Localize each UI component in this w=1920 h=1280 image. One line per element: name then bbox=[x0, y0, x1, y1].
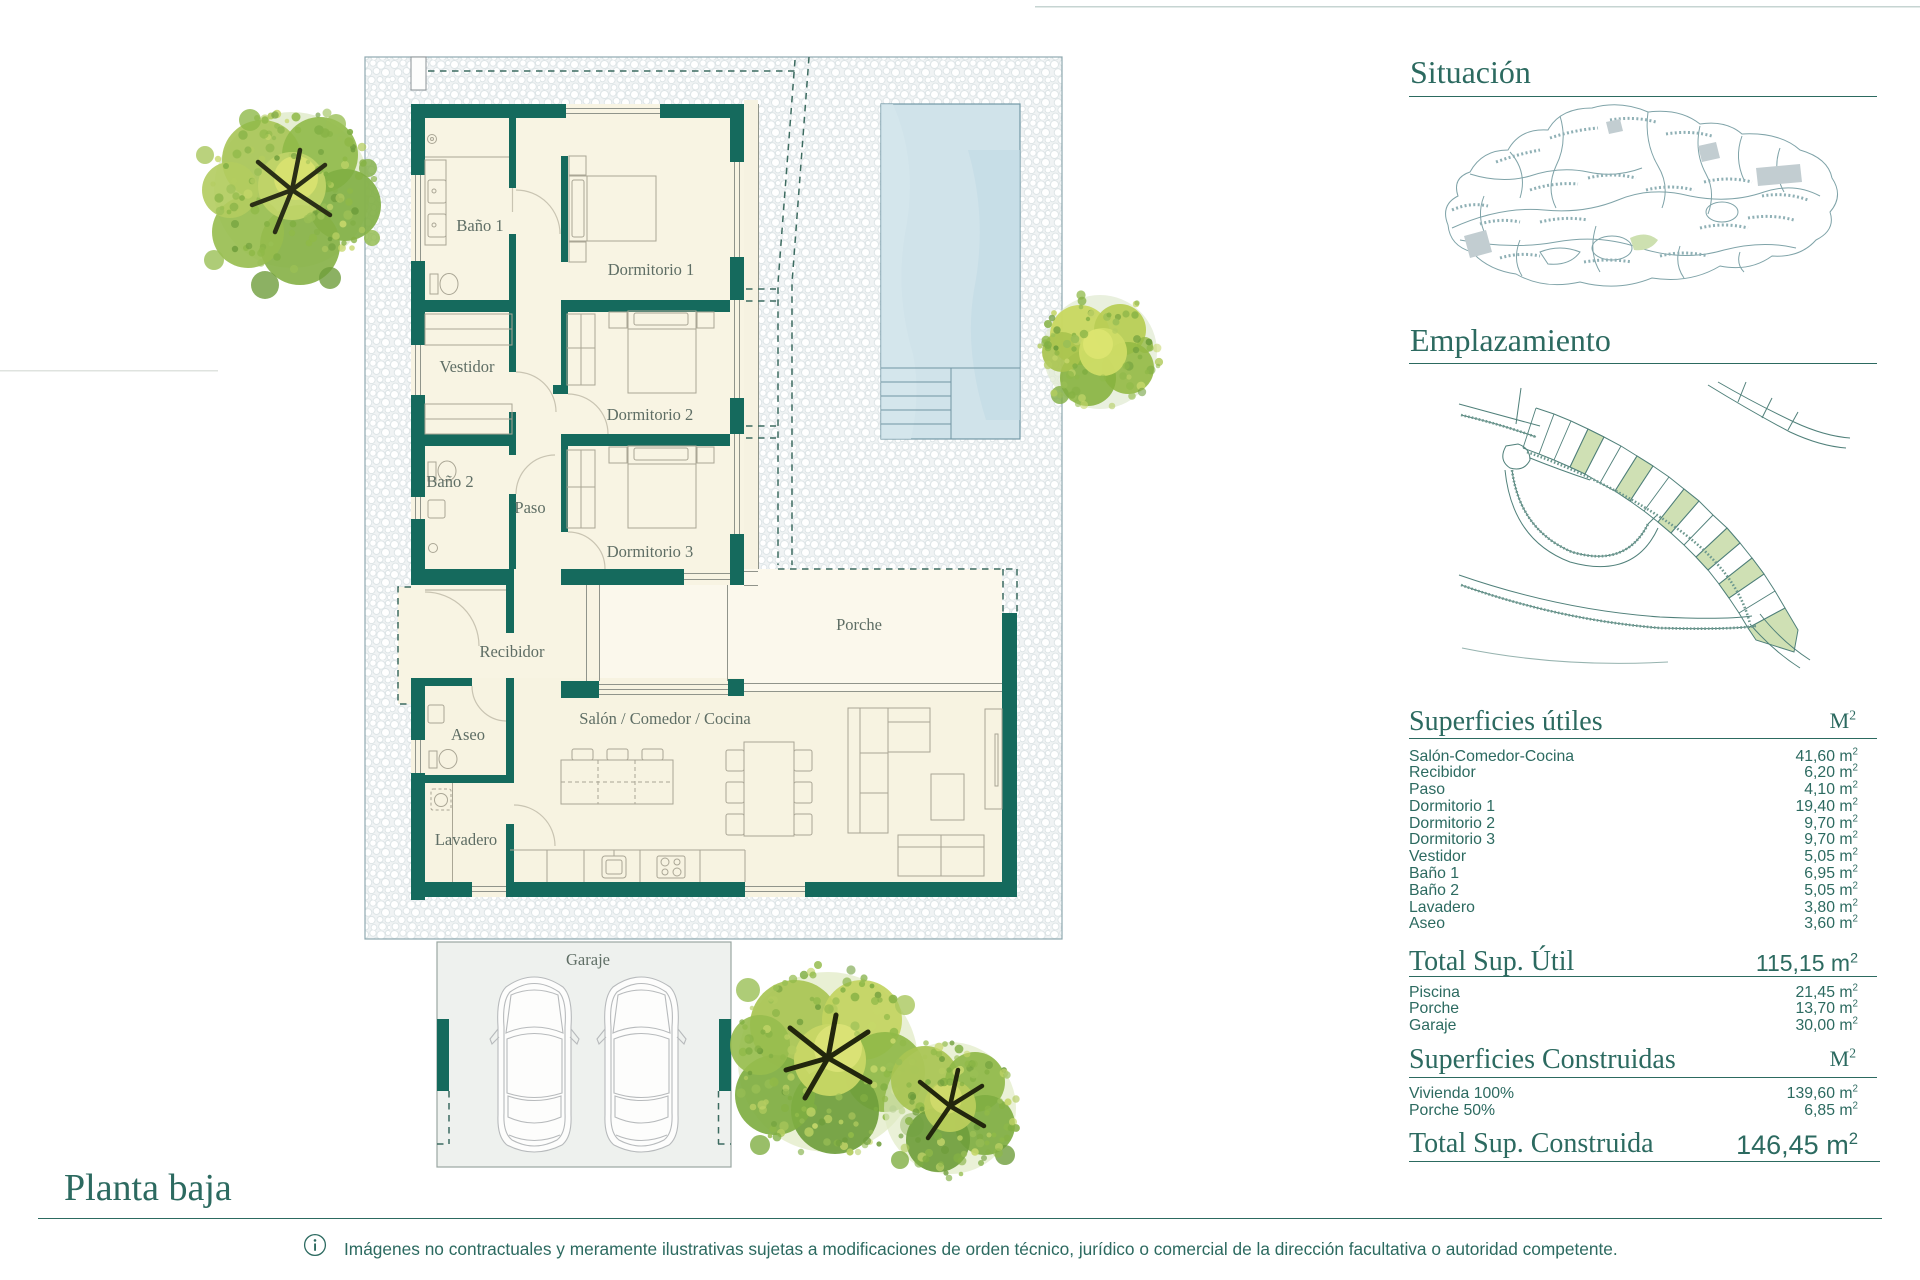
svg-text:Dormitorio 2: Dormitorio 2 bbox=[607, 405, 694, 424]
svg-text:Aseo: Aseo bbox=[451, 725, 485, 744]
svg-text:Baño 2: Baño 2 bbox=[426, 472, 473, 491]
svg-text:Dormitorio 1: Dormitorio 1 bbox=[608, 260, 695, 279]
svg-text:Baño 1: Baño 1 bbox=[456, 216, 503, 235]
svg-text:Dormitorio 3: Dormitorio 3 bbox=[607, 542, 694, 561]
svg-text:Salón / Comedor / Cocina: Salón / Comedor / Cocina bbox=[579, 709, 751, 728]
svg-text:Recibidor: Recibidor bbox=[479, 642, 545, 661]
svg-text:Vestidor: Vestidor bbox=[440, 357, 496, 376]
svg-text:Paso: Paso bbox=[514, 498, 545, 517]
svg-text:Lavadero: Lavadero bbox=[435, 830, 497, 849]
svg-text:Garaje: Garaje bbox=[566, 950, 610, 969]
svg-text:Porche: Porche bbox=[836, 615, 882, 634]
